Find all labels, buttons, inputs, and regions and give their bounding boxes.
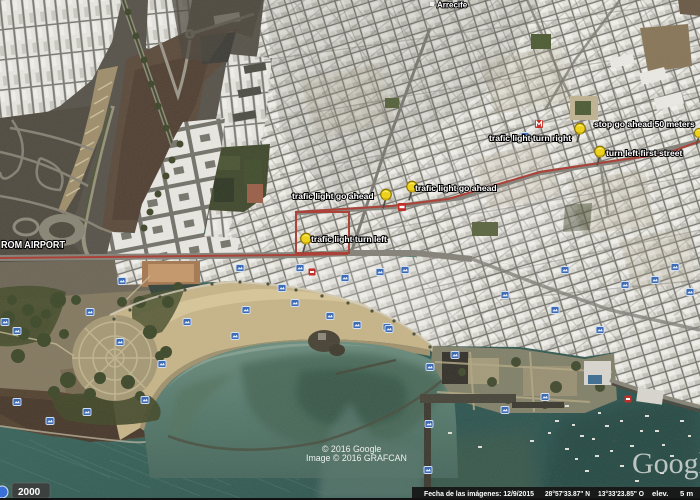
svg-text:trafic light go ahead: trafic light go ahead <box>292 191 374 201</box>
svg-text:2000: 2000 <box>18 487 41 498</box>
svg-text:elev.: elev. <box>652 489 668 498</box>
svg-text:5 m: 5 m <box>680 489 693 498</box>
svg-text:Fecha de las imágenes: 12/9/20: Fecha de las imágenes: 12/9/2015 <box>424 489 535 498</box>
svg-text:trafic light turn right: trafic light turn right <box>489 133 571 143</box>
svg-text:trafic light turn left: trafic light turn left <box>311 234 387 244</box>
svg-text:Google: Google <box>632 447 700 480</box>
svg-text:trafic light go ahead: trafic light go ahead <box>415 183 497 193</box>
svg-text:stop go ahead 50 meters: stop go ahead 50 meters <box>594 119 695 129</box>
svg-text:13°33'23.85" O: 13°33'23.85" O <box>598 489 644 498</box>
svg-text:Image © 2016 GRAFCAN: Image © 2016 GRAFCAN <box>306 453 407 463</box>
svg-text:Arrecife: Arrecife <box>437 1 468 10</box>
svg-text:turn left first street: turn left first street <box>606 148 683 158</box>
svg-text:ROM AIRPORT: ROM AIRPORT <box>1 239 65 251</box>
svg-text:28°57'33.87" N: 28°57'33.87" N <box>545 489 590 498</box>
